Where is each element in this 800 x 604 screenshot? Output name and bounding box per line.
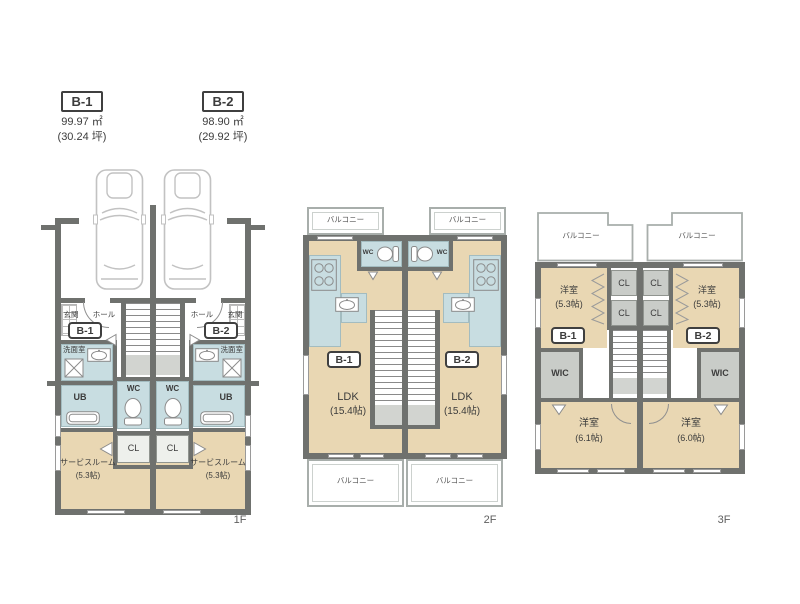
label-bath: UB [215,392,237,402]
wall-segment [180,303,185,377]
label-bedroom: 洋室 [541,418,637,430]
label-bedroom: 洋室 [643,418,739,430]
label-bedroom-size: (6.1帖) [541,433,637,443]
fold-door-mark [431,271,443,281]
area-b2-m2: 98.90 ㎡ [182,116,264,129]
wall-segment [370,425,440,429]
label-balcony: バルコニー [406,477,503,486]
label-balcony: バルコニー [429,216,506,225]
wall-segment [156,377,189,381]
fold-door-mark [367,271,379,281]
floor-label-1f: 1F [226,514,254,526]
label-bedroom: 洋室 [677,285,737,295]
window [557,263,597,267]
wall-segment [156,298,196,303]
label-bedroom: 洋室 [539,285,599,295]
label-wc: WC [434,249,450,256]
window [501,355,507,395]
floorplan-2f: バルコニー バルコニー バルコニー バルコニー WC WC LDK LDK (1… [303,205,507,507]
bathtub-icon [66,411,100,425]
window [87,510,125,514]
wall-segment [501,235,507,459]
label-bedroom-size: (6.0帖) [643,433,739,443]
window [317,236,353,240]
floor-label-2f: 2F [476,514,504,526]
label-ldk: LDK [318,391,378,404]
wall-segment [357,267,402,271]
wall-segment [697,348,739,352]
wall-segment [55,218,79,224]
stair-landing [156,355,180,375]
stair-landing [126,355,150,375]
label-balcony: バルコニー [307,477,404,486]
label-closet: CL [611,278,637,288]
label-balcony: バルコニー [659,232,735,241]
wall-segment [61,428,113,432]
window [328,454,354,458]
toilet-icon [122,397,144,427]
window [457,236,493,240]
label-closet: CL [117,443,150,453]
wall-segment [221,298,251,303]
label-wic: WIC [701,368,739,378]
wall-segment [61,381,113,385]
label-ldk: LDK [432,391,492,404]
wall-segment [667,330,671,398]
unit-badge-b1: B-1 [551,327,585,344]
label-wc: WC [117,384,150,393]
wall-segment [117,377,150,381]
window [303,355,309,395]
window [457,454,483,458]
window [739,424,745,450]
stove-icon [311,259,337,291]
unit-badge-b1: B-1 [327,351,361,368]
wall-segment [541,398,637,402]
wall-segment [541,348,583,352]
wall-segment [193,428,245,432]
window [55,415,61,437]
wall-segment [47,381,55,386]
window [693,469,721,473]
label-washroom: 洗面室 [209,346,243,355]
wall-segment [193,381,245,385]
floorplan-1f: 玄関 玄関 ホール ホール 洗面室 洗面室 UB UB WC WC CL CL … [55,165,251,515]
floorplan-3f: バルコニー バルコニー 洋室 洋室 (5.3帖) (5.3帖) CL CL CL… [535,210,745,474]
label-washroom: 洗面室 [61,346,97,355]
stair-landing [643,378,667,394]
label-service-size: (5.3帖) [185,471,251,480]
area-b1-m2: 99.97 ㎡ [41,116,123,129]
toilet-icon [377,245,399,263]
window [163,510,201,514]
window [653,469,685,473]
stairs-icon [408,310,435,405]
label-bath: UB [69,392,91,402]
bathtub-icon [200,411,234,425]
wall-segment [41,225,55,230]
label-bedroom-size: (5.3帖) [535,299,603,309]
label-hall: ホール [187,311,217,320]
fold-door-mark [193,441,207,457]
label-ldk-size: (15.4帖) [426,406,498,418]
floorplan-sheet: B-1 99.97 ㎡ (30.24 坪) B-2 98.90 ㎡ (29.92… [0,0,800,604]
washer-icon [64,358,84,378]
wall-segment [121,303,126,377]
label-balcony: バルコニー [307,216,384,225]
label-service-size: (5.3帖) [55,471,121,480]
label-wc: WC [360,249,376,256]
fold-door-mark [713,404,729,416]
area-b2-tsubo: (29.92 坪) [182,131,264,144]
window [245,415,251,437]
fold-door-mark [551,404,567,416]
label-service-room: サービスルーム [185,458,251,467]
fold-door-mark [99,441,113,457]
wall-segment [609,330,613,398]
washer-icon [222,358,242,378]
label-closet: CL [156,443,189,453]
label-balcony: バルコニー [543,232,619,241]
unit-badge-b2: B-2 [204,322,238,339]
wall-segment [579,352,583,398]
wall-segment [251,381,259,386]
window [597,469,625,473]
fold-door-mark [189,333,201,347]
label-closet: CL [611,308,637,318]
label-service-room: サービスルーム [55,458,121,467]
wall-segment [110,298,150,303]
window [557,469,589,473]
toilet-icon [162,397,184,427]
wall-segment [303,235,309,459]
wall-segment [251,225,265,230]
label-closet: CL [643,278,669,288]
floor-label-3f: 3F [710,514,738,526]
stairs-icon [375,310,402,405]
area-b1-tsubo: (30.24 坪) [41,131,123,144]
unit-badge-b2-header: B-2 [202,91,244,112]
car-icon [93,168,146,292]
wall-segment [643,398,739,402]
fold-door-mark [105,333,117,347]
sink-icon [335,297,359,312]
label-entrance: 玄関 [55,311,87,320]
label-ldk-size: (15.4帖) [312,406,384,418]
label-wic: WIC [541,368,579,378]
window [683,263,723,267]
label-bedroom-size: (5.3帖) [673,299,741,309]
sink-icon [451,297,475,312]
label-closet: CL [643,308,669,318]
label-wc: WC [156,384,189,393]
stair-landing [613,378,637,394]
window [360,454,384,458]
unit-badge-b2: B-2 [686,327,720,344]
label-entrance: 玄関 [219,311,251,320]
wall-segment [227,218,251,224]
wall-segment [55,298,85,303]
unit-badge-b1-header: B-1 [61,91,103,112]
stove-icon [473,259,499,291]
window [425,454,451,458]
car-icon [161,168,214,292]
unit-badge-b2: B-2 [445,351,479,368]
label-hall: ホール [89,311,119,320]
unit-badge-b1: B-1 [68,322,102,339]
toilet-icon [411,245,433,263]
